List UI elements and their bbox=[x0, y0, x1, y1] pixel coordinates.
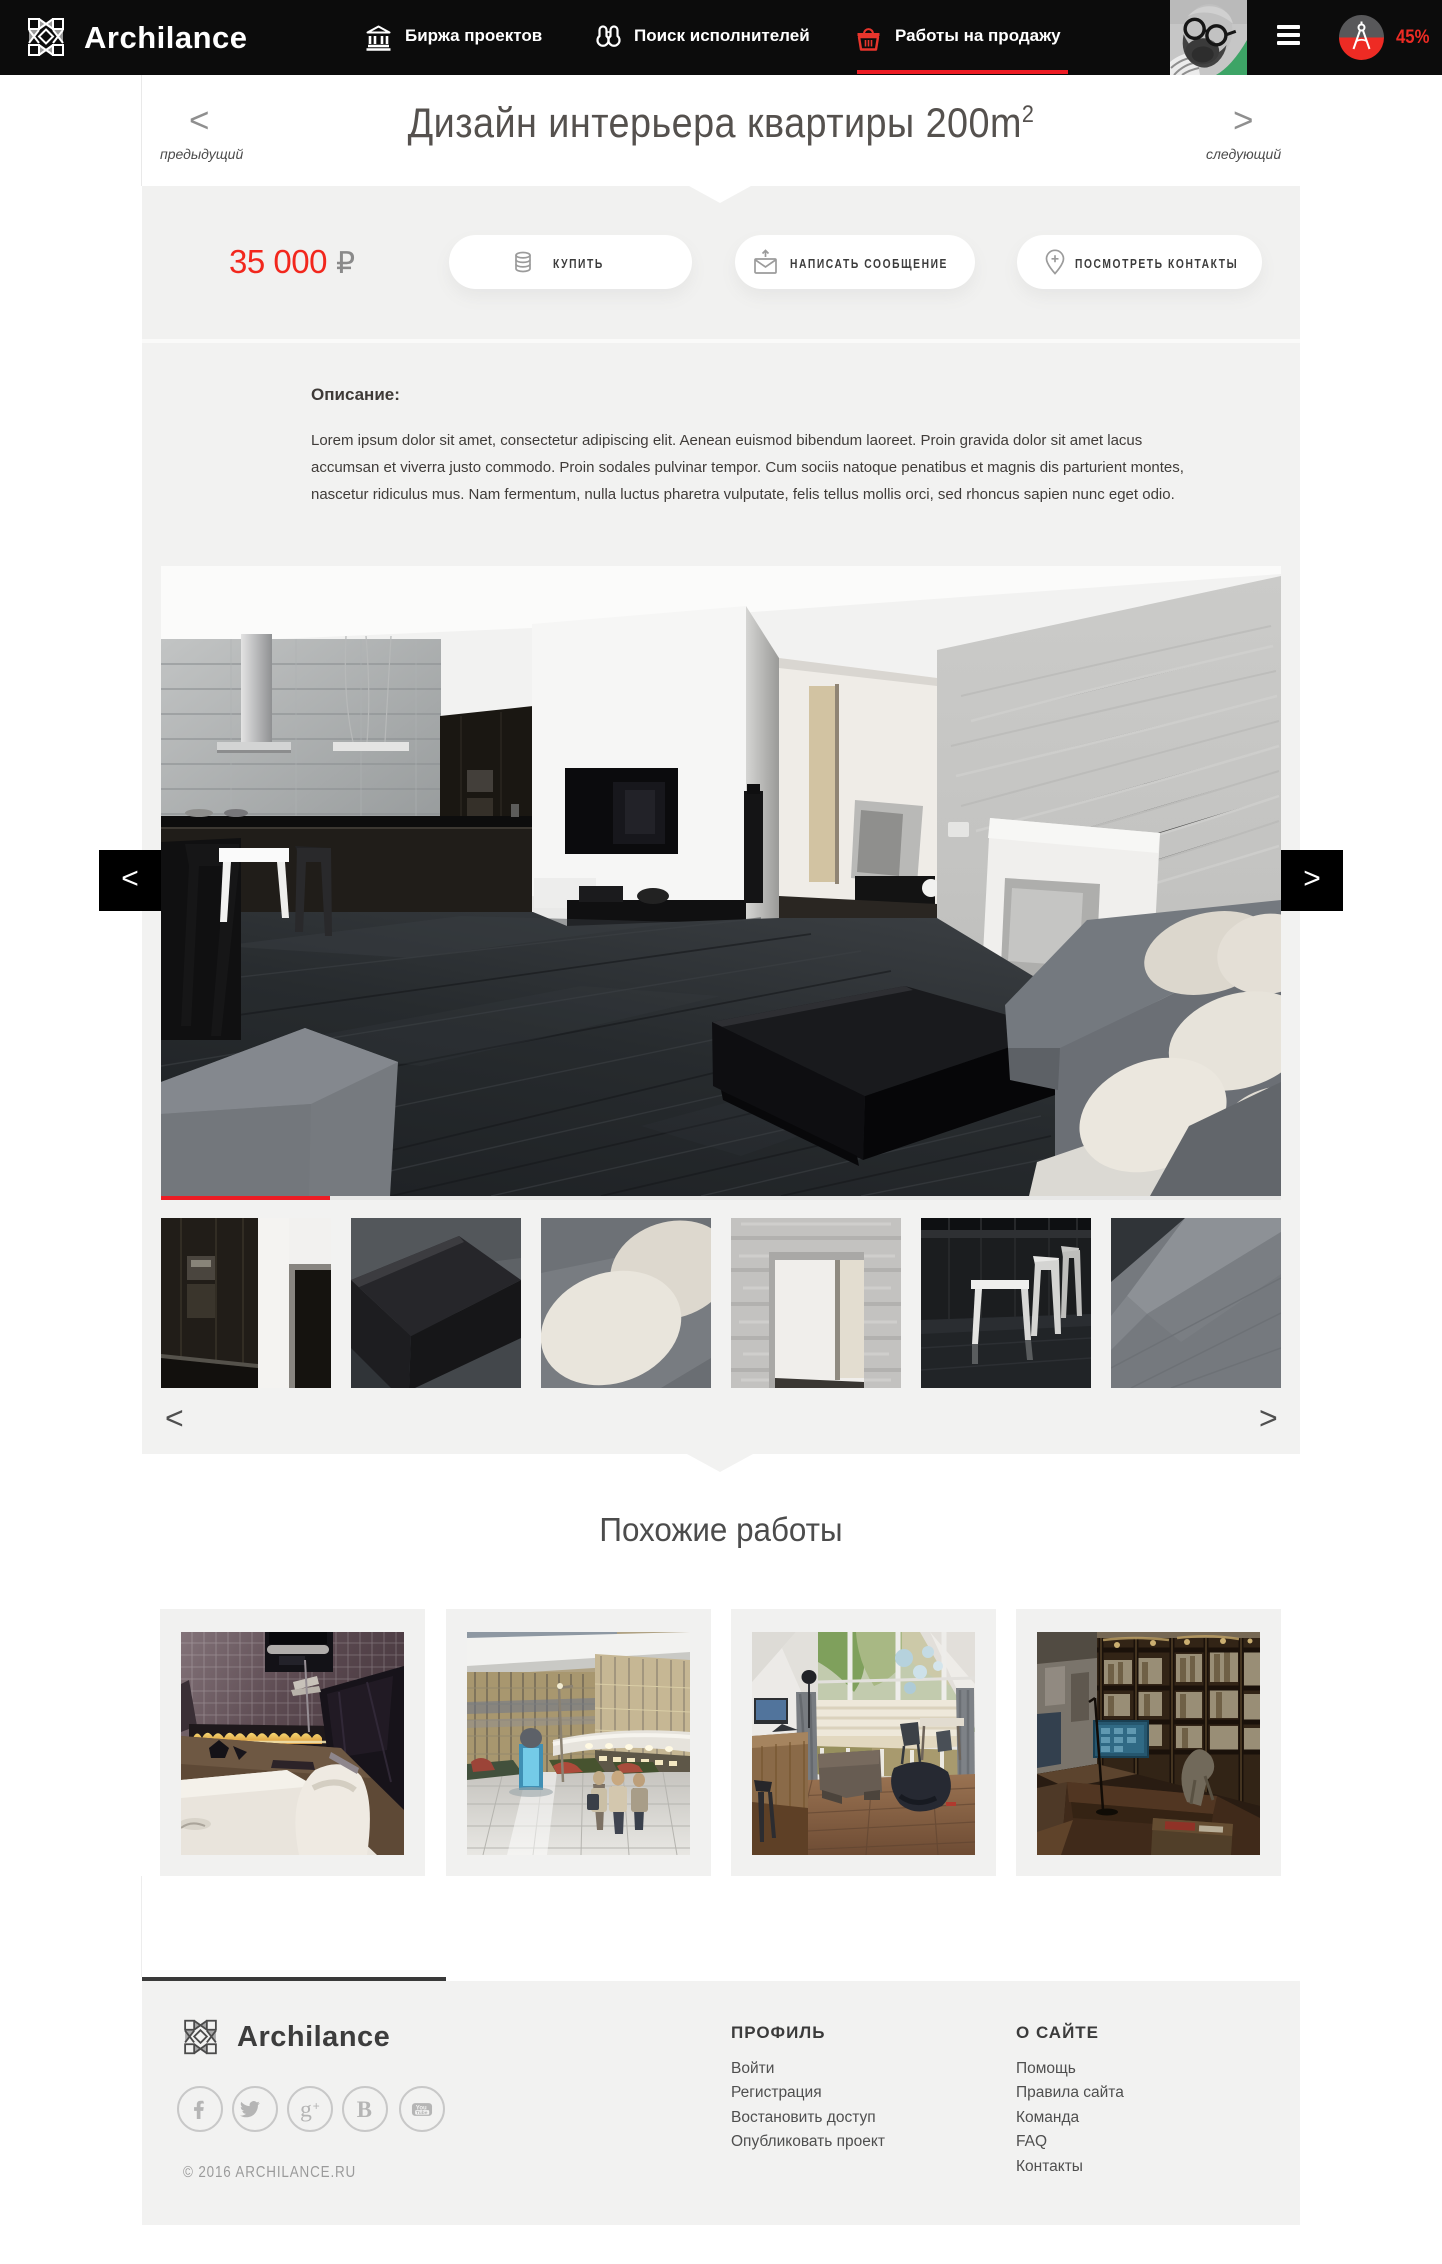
svg-text:g: g bbox=[300, 2096, 312, 2122]
svg-text:B: B bbox=[357, 2097, 372, 2122]
svg-text:Tube: Tube bbox=[416, 2110, 428, 2116]
svg-text:+: + bbox=[313, 2099, 320, 2113]
